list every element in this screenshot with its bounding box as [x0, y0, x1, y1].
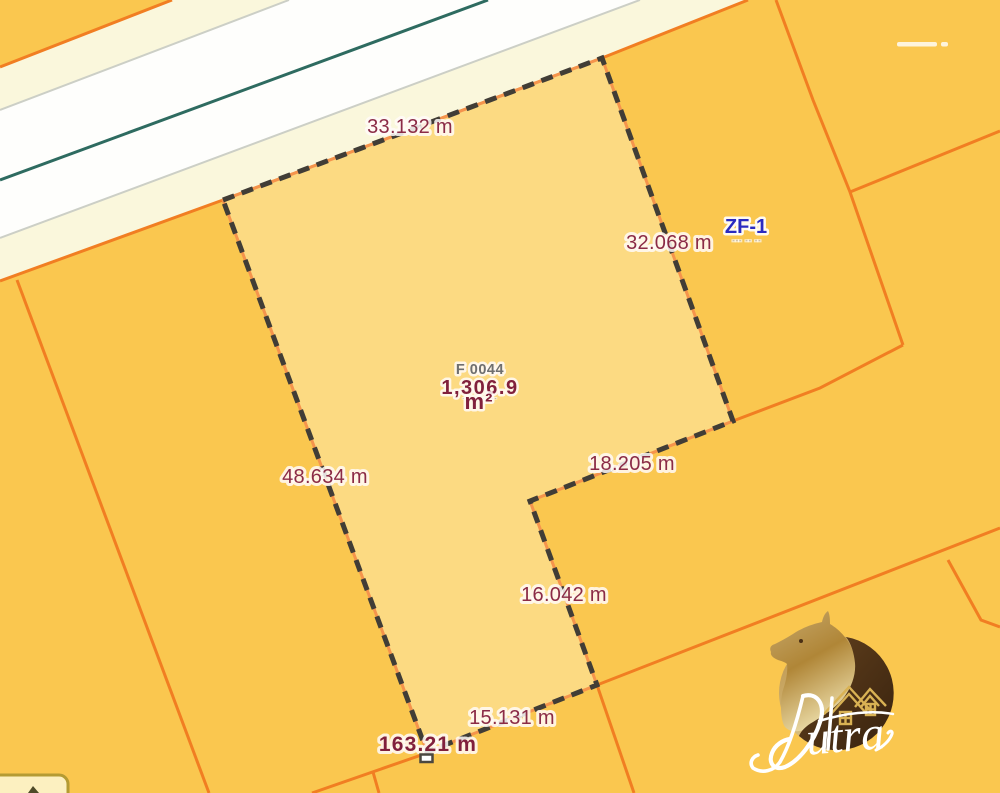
- svg-text:utra: utra: [804, 707, 887, 766]
- svg-text:m²: m²: [465, 389, 494, 414]
- svg-text:--- -- --: --- -- --: [732, 238, 761, 245]
- svg-text:F 0044: F 0044: [456, 362, 504, 378]
- svg-text:32.068 m: 32.068 m: [626, 232, 712, 254]
- svg-text:15.131 m: 15.131 m: [469, 707, 555, 729]
- svg-text:ZF-1: ZF-1: [725, 216, 767, 238]
- svg-text:16.042 m: 16.042 m: [521, 584, 607, 606]
- svg-text:33.132 m: 33.132 m: [367, 116, 453, 138]
- svg-text:163.21 m: 163.21 m: [379, 733, 477, 756]
- svg-text:18.205 m: 18.205 m: [589, 453, 675, 475]
- svg-text:48.634 m: 48.634 m: [282, 466, 368, 488]
